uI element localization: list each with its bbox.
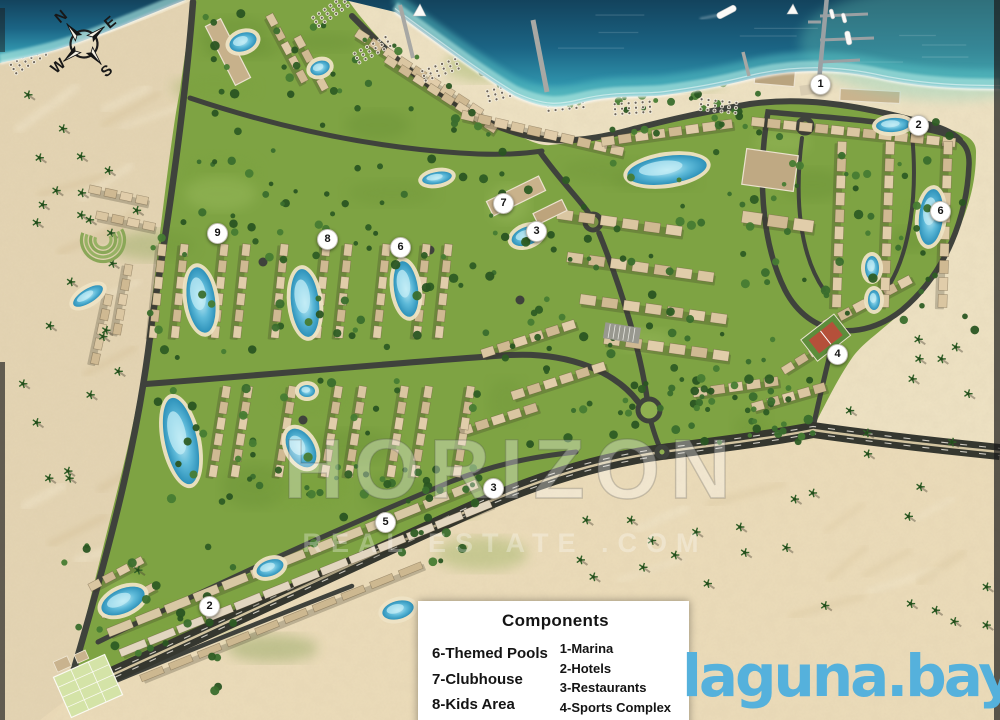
legend-item: 1-Marina — [560, 639, 679, 659]
resort-logo: laguna.bay — [682, 642, 1000, 710]
legend-item: 3-Restaurants — [560, 678, 679, 698]
image-edge-left-lower — [0, 362, 5, 720]
legend-item: 4-Sports Complex — [560, 698, 679, 718]
image-edge-left-top — [0, 8, 5, 52]
legend-item: 6-Themed Pools — [432, 641, 560, 667]
legend-right-column: 1-Marina2-Hotels3-Restaurants4-Sports Co… — [560, 639, 679, 720]
watermark-line1: HORIZON — [283, 422, 740, 516]
image-edge-right — [994, 0, 1000, 720]
watermark: HORIZON REAL ESTATE .COM — [283, 422, 740, 558]
map-canvas: HORIZON REAL ESTATE .COM N E S W 1267398… — [0, 0, 1000, 720]
legend-left-column: 6-Themed Pools7-Clubhouse8-Kids Area9-Am… — [432, 641, 560, 720]
legend-item: 2-Hotels — [560, 659, 679, 679]
legend-title: Components — [432, 611, 679, 631]
watermark-line2: REAL ESTATE .COM — [302, 528, 707, 558]
legend-item: 7-Clubhouse — [432, 667, 560, 693]
legend-panel: Components 6-Themed Pools7-Clubhouse8-Ki… — [418, 601, 689, 720]
legend-item: 8-Kids Area — [432, 692, 560, 718]
